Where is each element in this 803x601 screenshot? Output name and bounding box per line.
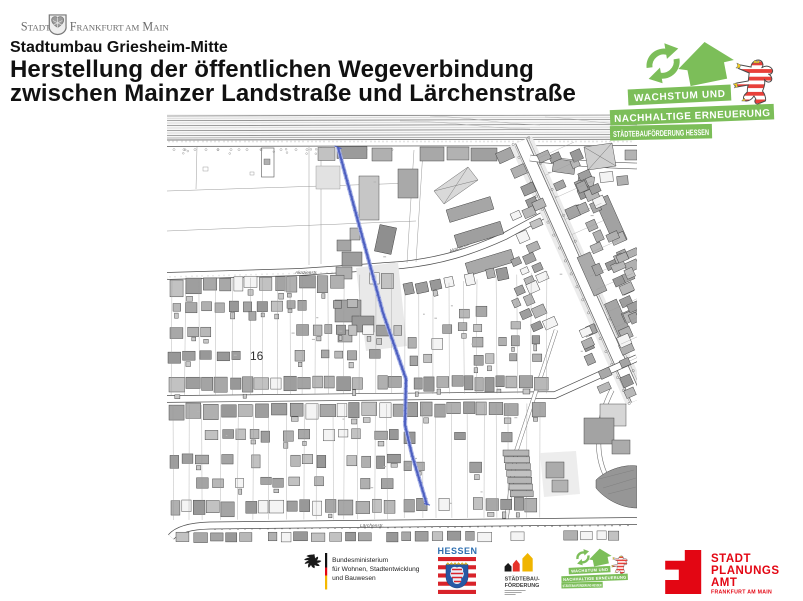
svg-text:STÄDTEBAUFÖRDERUNG HESSEN: STÄDTEBAUFÖRDERUNG HESSEN bbox=[613, 127, 709, 139]
svg-text:Bundesministerium: Bundesministerium bbox=[332, 557, 388, 564]
svg-text:für Wohnen, Stadtentwicklung: für Wohnen, Stadtentwicklung bbox=[332, 566, 420, 573]
svg-text:und Bauwesen: und Bauwesen bbox=[332, 575, 376, 582]
svg-text:FRANKFURT AM MAIN: FRANKFURT AM MAIN bbox=[70, 20, 170, 34]
svg-text:FÖRDERUNG: FÖRDERUNG bbox=[505, 582, 540, 589]
svg-text:STADT: STADT bbox=[711, 553, 751, 565]
svg-text:PLANUNGS: PLANUNGS bbox=[711, 565, 780, 577]
svg-text:STADT: STADT bbox=[21, 20, 51, 34]
svg-text:HESSEN: HESSEN bbox=[438, 546, 478, 556]
svg-text:16: 16 bbox=[250, 349, 264, 363]
svg-text:Lärchenstr.: Lärchenstr. bbox=[360, 523, 384, 529]
svg-text:AMT: AMT bbox=[711, 577, 737, 589]
svg-text:Akazienstr.: Akazienstr. bbox=[294, 270, 318, 275]
svg-text:STÄDTEBAU-: STÄDTEBAU- bbox=[505, 576, 540, 583]
svg-text:FRANKFURT AM MAIN: FRANKFURT AM MAIN bbox=[711, 590, 772, 596]
